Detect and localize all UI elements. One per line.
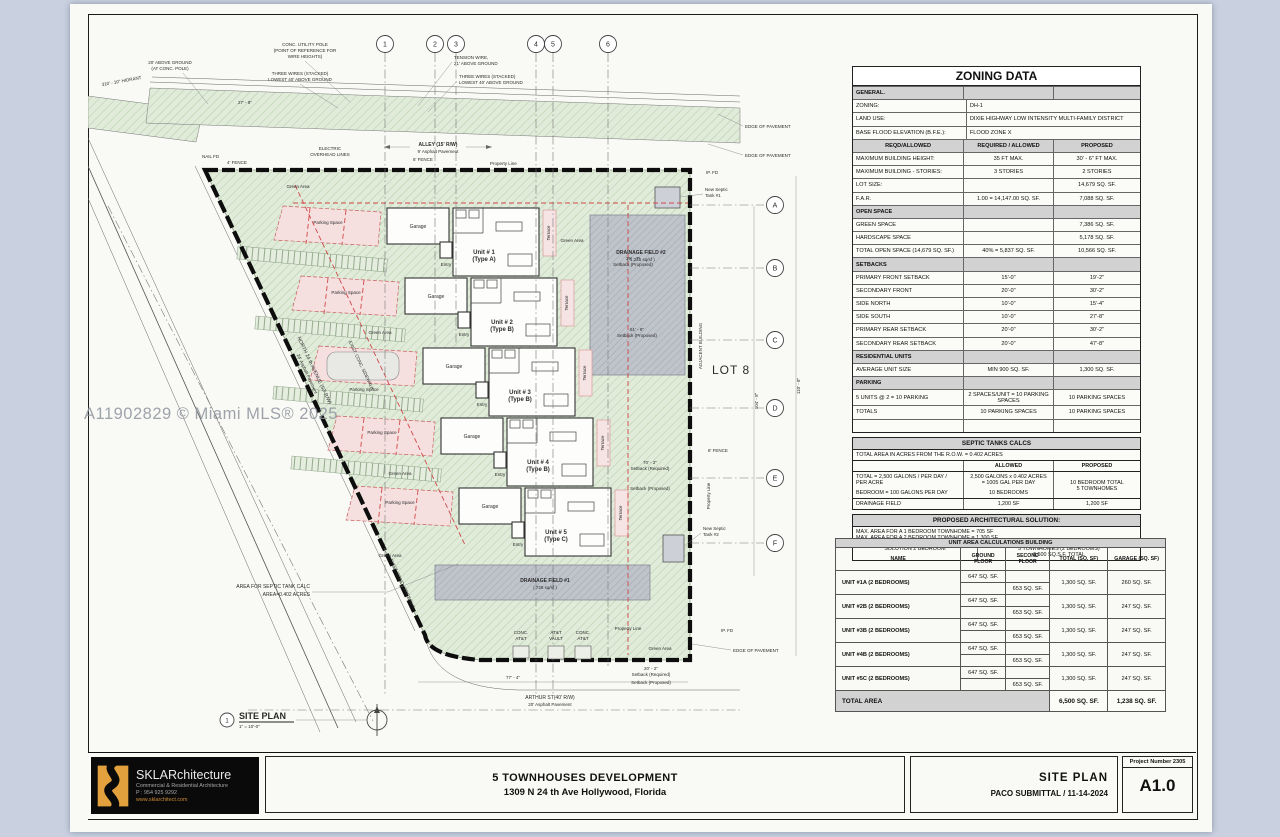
title-block: SKLARchitecture Commercial & Residential… [88,752,1196,819]
zoning-row: SIDE NORTH 10'-0" 15'-4" [853,297,1140,310]
firm-tagline: Commercial & Residential Architecture [136,783,231,790]
svg-text:Parking Space: Parking Space [313,220,343,225]
svg-text:ALLEY (15' R/W): ALLEY (15' R/W) [419,142,458,148]
unit-second-blank [1005,667,1050,679]
unit-ground: 647 SQ. SF. [961,571,1006,583]
drainage-field-2 [590,215,685,375]
svg-text:B: B [773,266,778,273]
zoning-cell-label: BASE FLOOD ELEVATION (B.F.E.): [853,127,967,139]
project-number: Project Number 2305 [1123,757,1192,768]
svg-text:51' - 8": 51' - 8" [630,327,644,332]
zoning-row: LAND USE: DIXIE HIGHWAY LOW INTENSITY MU… [853,112,1140,125]
septic-area-note: TOTAL AREA IN ACRES FROM THE R.O.W. = 0.… [853,450,1140,460]
drainage-label: DRAINAGE FIELD [853,499,964,509]
unit-ground-blank [961,631,1006,643]
zoning-row: HARDSCAPE SPACE 5,178 SQ. SF. [853,231,1140,244]
zoning-cell-label: PRIMARY FRONT SETBACK [853,272,964,284]
svg-text:Green Area: Green Area [560,238,584,243]
firm-website: www.sklarchitect.com [136,797,231,804]
svg-text:Garage: Garage [464,434,481,440]
zoning-row [853,419,1140,432]
svg-text:Garage: Garage [482,504,499,510]
zoning-row: OPEN SPACE [853,205,1140,218]
zoning-cell-label: PRIMARY REAR SETBACK [853,324,964,336]
zoning-cell-proposed: 7,088 SQ. SF. [1054,193,1140,205]
svg-text:E: E [773,476,778,483]
zoning-row: PARKING [853,376,1140,389]
zoning-cell-proposed: 27'-8" [1054,311,1140,323]
zoning-cell-required: 40% = 5,837 SQ. SF. [964,245,1054,257]
zoning-cell-proposed: 10 PARKING SPACES [1054,390,1140,405]
zoning-cell-label: OPEN SPACE [853,206,964,218]
sheet-number-box: Project Number 2305 A1.0 [1122,756,1193,813]
svg-text:(AT CONC. POLE): (AT CONC. POLE) [151,66,189,71]
zoning-cell-required [964,219,1054,231]
zoning-cell-required: 1.00 = 14,147.00 SQ. SF. [964,193,1054,205]
svg-text:Unit # 1: Unit # 1 [473,250,495,256]
zoning-cell-required: DH-1 [967,100,1140,112]
svg-text:(Type B): (Type B) [508,397,532,403]
svg-text:6' FENCE: 6' FENCE [413,157,433,162]
unit-row: UNIT #1A (2 BEDROOMS) 647 SQ. SF. 1,300 … [836,571,1166,583]
svg-text:C: C [772,338,777,345]
firm-name: SKLARchitecture [136,768,231,784]
unit-total: 1,300 SQ. SF. [1050,667,1108,691]
unit-ground: 647 SQ. SF. [961,619,1006,631]
unit-row: UNIT #4B (2 BEDROOMS) 647 SQ. SF. 1,300 … [836,643,1166,655]
zoning-cell-label: HARDSCAPE SPACE [853,232,964,244]
svg-text:Setback (Required): Setback (Required) [632,672,671,677]
svg-text:310' - 10" HIDRANT: 310' - 10" HIDRANT [101,75,142,87]
zoning-cell-required: 35 FT MAX. [964,153,1054,165]
project-title-box: 5 TOWNHOUSES DEVELOPMENT 1309 N 24 th Av… [265,756,905,813]
svg-text:Parking Space: Parking Space [367,430,397,435]
firm-logo-box: SKLARchitecture Commercial & Residential… [91,757,259,814]
svg-text:Property Line: Property Line [706,482,711,509]
sheet-number: A1.0 [1123,768,1192,796]
zoning-row: 5 UNITS @ 2 = 10 PARKING 2 SPACES/UNIT =… [853,389,1140,405]
svg-text:6: 6 [606,42,610,49]
unit-ground-blank [961,655,1006,667]
svg-text:Tank #1: Tank #1 [705,193,721,198]
svg-text:NAIL FD: NAIL FD [202,154,220,159]
zoning-cell-required: 20'-0" [964,324,1054,336]
svg-text:Terrace: Terrace [618,505,623,521]
svg-text:Green Area: Green Area [388,471,412,476]
unit-ground: 647 SQ. SF. [961,667,1006,679]
svg-text:New Septic: New Septic [703,526,727,531]
zoning-row: GREEN SPACE 7,386 SQ. SF. [853,218,1140,231]
svg-text:CONC. UTILITY POLE: CONC. UTILITY POLE [282,42,328,47]
total-area-label: TOTAL AREA [836,691,1050,712]
svg-text:4' FENCE: 4' FENCE [227,160,247,165]
svg-text:Entry: Entry [441,262,452,267]
zoning-cell-proposed [1054,351,1140,363]
svg-text:AT&T: AT&T [515,636,526,641]
zoning-row: PRIMARY FRONT SETBACK 15'-0" 19'-2" [853,271,1140,284]
zoning-row: ZONING: DH-1 [853,99,1140,112]
zoning-cell-label [853,420,964,432]
svg-text:SITE PLAN: SITE PLAN [239,711,286,721]
svg-text:Garage: Garage [446,364,463,370]
zoning-cell-proposed [1054,420,1140,432]
unit-area-title: UNIT AREA CALCULATIONS BUILDING [836,539,1166,548]
zoning-cell-label: GENERAL. [853,87,964,99]
unit-name: UNIT #1A (2 BEDROOMS) [836,571,961,595]
svg-text:Unit # 4: Unit # 4 [527,460,549,466]
unit-area-panel: UNIT AREA CALCULATIONS BUILDING NAME GRO… [835,538,1166,712]
svg-text:DRAINAGE FIELD #2: DRAINAGE FIELD #2 [616,250,666,256]
svg-text:THREE WIRES (STACKED): THREE WIRES (STACKED) [459,74,516,79]
zoning-cell-required: REQUIRED / ALLOWED [964,140,1054,152]
svg-text:EDGE OF PAVEMENT: EDGE OF PAVEMENT [745,124,791,129]
septic-header-allowed: ALLOWED [964,461,1054,471]
svg-text:A: A [773,203,778,210]
svg-text:Setback (Proposed): Setback (Proposed) [613,262,653,267]
svg-text:( 728 sq/sf ): ( 728 sq/sf ) [533,585,557,590]
zoning-cell-proposed: 1,300 SQ. SF. [1054,364,1140,376]
unit-second: 653 SQ. SF. [1005,631,1050,643]
zoning-cell-label: TOTALS [853,406,964,418]
svg-text:(POINT OF REFERENCE FOR: (POINT OF REFERENCE FOR [274,48,337,53]
septic-calc-row: TOTAL = 2,500 GALONS / PER DAY /PER ACRE… [852,472,1141,499]
unit-gar: 247 SQ. SF. [1108,667,1166,691]
svg-text:AT&T: AT&T [577,636,588,641]
svg-text:IP. FD: IP. FD [706,170,719,175]
zoning-title: ZONING DATA [852,66,1141,86]
unit-gar: 247 SQ. SF. [1108,619,1166,643]
unit-second-blank [1005,619,1050,631]
svg-text:VAULT: VAULT [549,636,563,641]
zoning-cell-required: 2 SPACES/UNIT = 10 PARKING SPACES [964,390,1054,405]
svg-text:9' Asphalt Pavement: 9' Asphalt Pavement [418,149,460,154]
zoning-row: LOT SIZE: 14,679 SQ. SF. [853,178,1140,191]
svg-text:20' - 2": 20' - 2" [644,666,658,671]
unit-name: UNIT #4B (2 BEDROOMS) [836,643,961,667]
svg-text:Green Area: Green Area [286,184,310,189]
svg-text:20' ABOVE GROUND: 20' ABOVE GROUND [148,60,192,65]
svg-text:Terrace: Terrace [582,365,587,381]
zoning-cell-required [964,232,1054,244]
col-ground: GROUNDFLOOR [961,548,1006,571]
svg-text:WIRE HEIGHTS): WIRE HEIGHTS) [288,54,323,59]
zoning-cell-label: REQD/ALLOWED [853,140,964,152]
unit-name: UNIT #2B (2 BEDROOMS) [836,595,961,619]
sheet-title-box: SITE PLAN PACO SUBMITTAL / 11-14-2024 [910,756,1118,813]
svg-text:Setback (Proposed): Setback (Proposed) [617,333,657,338]
zoning-cell-proposed: 7,386 SQ. SF. [1054,219,1140,231]
septic-calc-allowed: 2,500 GALONS x 0.402 ACRES= 1005 GAL PER… [964,472,1054,498]
svg-text:Property Line: Property Line [615,626,642,631]
zoning-row: REQD/ALLOWED REQUIRED / ALLOWED PROPOSED [853,139,1140,152]
unit-total: 1,300 SQ. SF. [1050,571,1108,595]
total-garage-value: 1,238 SQ. SF. [1108,691,1166,712]
svg-text:Green Area: Green Area [648,646,672,651]
unit-second: 653 SQ. SF. [1005,679,1050,691]
total-area-value: 6,500 SQ. SF. [1050,691,1108,712]
svg-text:70' - 2": 70' - 2" [643,460,657,465]
svg-text:TENSION WIRE,: TENSION WIRE, [454,55,488,60]
svg-text:EDGE OF PAVEMENT: EDGE OF PAVEMENT [733,648,779,653]
svg-text:Parking Space: Parking Space [385,500,415,505]
zoning-cell-proposed [1054,377,1140,389]
zoning-cell-proposed: 19'-2" [1054,272,1140,284]
svg-text:F: F [773,541,777,548]
zoning-row: BASE FLOOD ELEVATION (B.F.E.): FLOOD ZON… [853,126,1140,139]
svg-text:(Type B): (Type B) [526,467,550,473]
zoning-cell-proposed: 30' - 6" FT MAX. [1054,153,1140,165]
project-address: 1309 N 24 th Ave Hollywood, Florida [504,787,666,798]
svg-text:DRAINAGE FIELD #1: DRAINAGE FIELD #1 [520,578,570,584]
svg-text:LOT 8: LOT 8 [712,363,750,377]
svg-text:Terrace: Terrace [564,295,569,311]
svg-text:8' FENCE: 8' FENCE [708,448,728,453]
col-second: SECONDFLOOR [1005,548,1050,571]
svg-text:THREE WIRES (STACKED): THREE WIRES (STACKED) [272,71,329,76]
svg-text:(Type B): (Type B) [490,327,514,333]
svg-text:(Type A): (Type A) [472,257,495,263]
zoning-row: PRIMARY REAR SETBACK 20'-0" 30'-2" [853,323,1140,336]
zoning-cell-required: 10'-0" [964,298,1054,310]
unit-row: UNIT #2B (2 BEDROOMS) 647 SQ. SF. 1,300 … [836,595,1166,607]
unit-second: 653 SQ. SF. [1005,583,1050,595]
zoning-cell-proposed [1054,87,1140,99]
unit-total: 1,300 SQ. SF. [1050,595,1108,619]
unit-gar: 247 SQ. SF. [1108,643,1166,667]
zoning-cell-label: 5 UNITS @ 2 = 10 PARKING [853,390,964,405]
unit-row: UNIT #3B (2 BEDROOMS) 647 SQ. SF. 1,300 … [836,619,1166,631]
zoning-cell-label: AVERAGE UNIT SIZE [853,364,964,376]
unit-ground-blank [961,679,1006,691]
unit-second-blank [1005,643,1050,655]
zoning-cell-label: RESIDENTIAL UNITS [853,351,964,363]
unit-gar: 260 SQ. SF. [1108,571,1166,595]
zoning-row: TOTAL OPEN SPACE (14,679 SQ. SF.) 40% = … [853,244,1140,257]
zoning-cell-label: GREEN SPACE [853,219,964,231]
svg-text:LOWEST 40' ABOVE GROUND: LOWEST 40' ABOVE GROUND [268,77,333,82]
zoning-cell-required [964,258,1054,270]
zoning-row: SIDE SOUTH 10'-0" 27'-8" [853,310,1140,323]
septic-calc-proposed: 10 BEDROOM TOTAL5 TOWNHOMES [1054,472,1140,498]
svg-text:ADJACENT BUILDING: ADJACENT BUILDING [698,322,703,369]
septic-header-row: ALLOWED PROPOSED [852,461,1141,472]
unit-ground-blank [961,583,1006,595]
zoning-cell-required: 3 STORIES [964,166,1054,178]
sheet-title: SITE PLAN [1039,772,1108,784]
zoning-cell-proposed: 5,178 SQ. SF. [1054,232,1140,244]
svg-text:Garage: Garage [428,294,445,300]
svg-text:Unit # 2: Unit # 2 [491,320,513,326]
septic-drainage-row: DRAINAGE FIELD 1,200 SF 1,200 SF [852,499,1141,510]
svg-text:Setback (Proposed): Setback (Proposed) [631,680,671,685]
screenshot-root: { "watermark": "A11902829 © Miami MLS® 2… [0,0,1280,837]
unit-second-blank [1005,595,1050,607]
zoning-row: SETBACKS [853,257,1140,270]
septic-calc-label: TOTAL = 2,500 GALONS / PER DAY /PER ACRE… [853,472,964,498]
svg-text:CONC.: CONC. [514,630,529,635]
svg-text:Green Area: Green Area [378,553,402,558]
zoning-cell-required: 10'-0" [964,311,1054,323]
svg-text:1" = 10'-0": 1" = 10'-0" [239,724,260,729]
zoning-cell-proposed: 10,566 SQ. SF. [1054,245,1140,257]
zoning-cell-label: SECONDARY FRONT [853,285,964,297]
zoning-cell-required: DIXIE HIGHWAY LOW INTENSITY MULTI-FAMILY… [967,113,1140,125]
svg-text:20' Asphalt Pavement: 20' Asphalt Pavement [528,702,572,707]
arch-solution-title: PROPOSED ARCHITECTURAL SOLUTION: [852,514,1141,527]
svg-text:2: 2 [433,42,437,49]
zoning-row: SECONDARY REAR SETBACK 20'-0" 47'-8" [853,337,1140,350]
zoning-cell-required [964,87,1054,99]
zoning-cell-label: LOT SIZE: [853,179,964,191]
svg-text:Entry: Entry [459,332,470,337]
svg-text:Unit # 3: Unit # 3 [509,390,531,396]
unit-second: 653 SQ. SF. [1005,655,1050,667]
unit-total: 1,300 SQ. SF. [1050,619,1108,643]
zoning-cell-required [964,206,1054,218]
zoning-cell-label: SETBACKS [853,258,964,270]
unit-gar: 247 SQ. SF. [1108,595,1166,619]
unit-name: UNIT #3B (2 BEDROOMS) [836,619,961,643]
svg-text:Setback (Proposed): Setback (Proposed) [630,486,670,491]
svg-text:AREA=0.402 ACRES: AREA=0.402 ACRES [263,592,311,598]
drainage-proposed: 1,200 SF [1054,499,1140,509]
zoning-cell-required: FLOOD ZONE X [967,127,1140,139]
zoning-cell-proposed: 14,679 SQ. SF. [1054,179,1140,191]
unit-ground: 647 SQ. SF. [961,643,1006,655]
zoning-cell-proposed: PROPOSED [1054,140,1140,152]
zoning-cell-required: 15'-0" [964,272,1054,284]
unit-row: UNIT #5C (2 BEDROOMS) 647 SQ. SF. 1,300 … [836,667,1166,679]
zoning-table: GENERAL. ZONING: DH-1 LAND USE: DIXIE HI… [852,86,1141,433]
zoning-cell-proposed: 47'-8" [1054,338,1140,350]
svg-text:39' - 7": 39' - 7" [626,256,640,261]
zoning-cell-label: SIDE SOUTH [853,311,964,323]
svg-text:3: 3 [454,42,458,49]
zoning-row: TOTALS 10 PARKING SPACES 10 PARKING SPAC… [853,405,1140,418]
svg-text:LOWEST 40' ABOVE GROUND: LOWEST 40' ABOVE GROUND [459,80,524,85]
zoning-row: GENERAL. [853,86,1140,99]
zoning-cell-required [964,351,1054,363]
zoning-cell-label: F.A.R. [853,193,964,205]
svg-text:Terrace: Terrace [600,435,605,451]
mls-watermark: A11902829 © Miami MLS® 2025 [84,405,338,424]
unit-second-blank [1005,571,1050,583]
zoning-row: MAXIMUM BUILDING HEIGHT: 35 FT MAX. 30' … [853,152,1140,165]
septic-area-note-row: TOTAL AREA IN ACRES FROM THE R.O.W. = 0.… [852,450,1141,461]
zoning-row: AVERAGE UNIT SIZE MIN 900 SQ. SF. 1,300 … [853,363,1140,376]
svg-text:Tank #2: Tank #2 [703,532,719,537]
zoning-data-panel: ZONING DATA GENERAL. ZONING: DH-1 LAND U… [852,66,1141,561]
zoning-row: F.A.R. 1.00 = 14,147.00 SQ. SF. 7,088 SQ… [853,192,1140,205]
zoning-cell-required [964,420,1054,432]
zoning-cell-required [964,377,1054,389]
svg-text:1: 1 [383,42,387,49]
septic-tank-1 [655,187,680,208]
zoning-cell-label: ZONING: [853,100,967,112]
svg-text:Entry: Entry [513,542,524,547]
zoning-cell-label: TOTAL OPEN SPACE (14,679 SQ. SF.) [853,245,964,257]
svg-text:CONC.: CONC. [576,630,591,635]
zoning-cell-required: 20'-0" [964,338,1054,350]
svg-text:EDGE OF PAVEMENT: EDGE OF PAVEMENT [745,153,791,158]
svg-text:110' - 8": 110' - 8" [796,378,801,395]
zoning-cell-required: MIN 900 SQ. SF. [964,364,1054,376]
svg-text:Terrace: Terrace [546,225,551,241]
submittal-note: PACO SUBMITTAL / 11-14-2024 [991,789,1108,798]
site-plan-drawing: Parking Space Garage Entry Terrace Unit … [88,16,833,746]
svg-text:D: D [772,406,777,413]
svg-text:New Septic: New Septic [705,187,729,192]
svg-text:OVERHEAD LINES: OVERHEAD LINES [310,152,350,157]
zoning-cell-required: 20'-0" [964,285,1054,297]
unit-second: 653 SQ. SF. [1005,607,1050,619]
sklar-logo-icon [96,763,130,809]
zoning-cell-label: MAXIMUM BUILDING - STORIES: [853,166,964,178]
svg-text:(Type C): (Type C) [544,537,568,543]
svg-text:Entry: Entry [495,472,506,477]
zoning-cell-proposed: 2 STORIES [1054,166,1140,178]
col-garage: GARAGE (SQ. SF) [1108,548,1166,571]
unit-total-row: TOTAL AREA 6,500 SQ. SF. 1,238 SQ. SF. [836,691,1166,712]
svg-text:Unit # 5: Unit # 5 [545,530,567,536]
zoning-cell-proposed: 10 PARKING SPACES [1054,406,1140,418]
drainage-allowed: 1,200 SF [964,499,1054,509]
unit-ground: 647 SQ. SF. [961,595,1006,607]
unit-area-body: UNIT #1A (2 BEDROOMS) 647 SQ. SF. 1,300 … [836,571,1166,691]
zoning-cell-proposed [1054,206,1140,218]
col-total: TOTAL (SQ. SF) [1050,548,1108,571]
svg-text:77' - 4": 77' - 4" [506,675,520,680]
unit-area-header-row: NAME GROUNDFLOOR SECONDFLOOR TOTAL (SQ. … [836,548,1166,571]
zoning-cell-label: SIDE NORTH [853,298,964,310]
svg-text:Garage: Garage [410,224,427,230]
unit-total: 1,300 SQ. SF. [1050,643,1108,667]
septic-tank-2 [663,535,684,562]
zoning-row: MAXIMUM BUILDING - STORIES: 3 STORIES 2 … [853,165,1140,178]
svg-text:Green Area: Green Area [368,330,392,335]
zoning-cell-proposed: 15'-4" [1054,298,1140,310]
unit-ground-blank [961,607,1006,619]
unit-name: UNIT #5C (2 BEDROOMS) [836,667,961,691]
project-name: 5 TOWNHOUSES DEVELOPMENT [492,772,677,784]
svg-text:Property Line: Property Line [490,161,517,166]
zoning-cell-proposed [1054,258,1140,270]
svg-text:104' - 8": 104' - 8" [754,392,759,409]
zoning-cell-label: PARKING [853,377,964,389]
svg-text:Setback (Required): Setback (Required) [631,466,670,471]
svg-text:5: 5 [551,42,555,49]
zoning-cell-proposed: 30'-2" [1054,324,1140,336]
svg-text:4: 4 [534,42,538,49]
svg-text:ARTHUR ST(40' R/W): ARTHUR ST(40' R/W) [525,695,575,701]
zoning-cell-required [964,179,1054,191]
svg-text:IP. FD: IP. FD [721,628,734,633]
svg-text:27' - 8": 27' - 8" [238,100,252,105]
col-name: NAME [836,548,961,571]
septic-header-proposed: PROPOSED [1054,461,1140,471]
zoning-row: RESIDENTIAL UNITS [853,350,1140,363]
zoning-cell-label: MAXIMUM BUILDING HEIGHT: [853,153,964,165]
zoning-cell-required: 10 PARKING SPACES [964,406,1054,418]
svg-text:ELECTRIC: ELECTRIC [319,146,342,151]
svg-text:21' ABOVE GROUND: 21' ABOVE GROUND [454,61,498,66]
zoning-row: SECONDARY FRONT 20'-0" 30'-2" [853,284,1140,297]
svg-text:Entry: Entry [477,402,488,407]
zoning-cell-label: LAND USE: [853,113,967,125]
septic-header-blank [853,461,964,471]
svg-text:AT&T: AT&T [550,630,561,635]
svg-text:AREA FOR SEPTIC TANK CALC: AREA FOR SEPTIC TANK CALC [236,584,310,590]
